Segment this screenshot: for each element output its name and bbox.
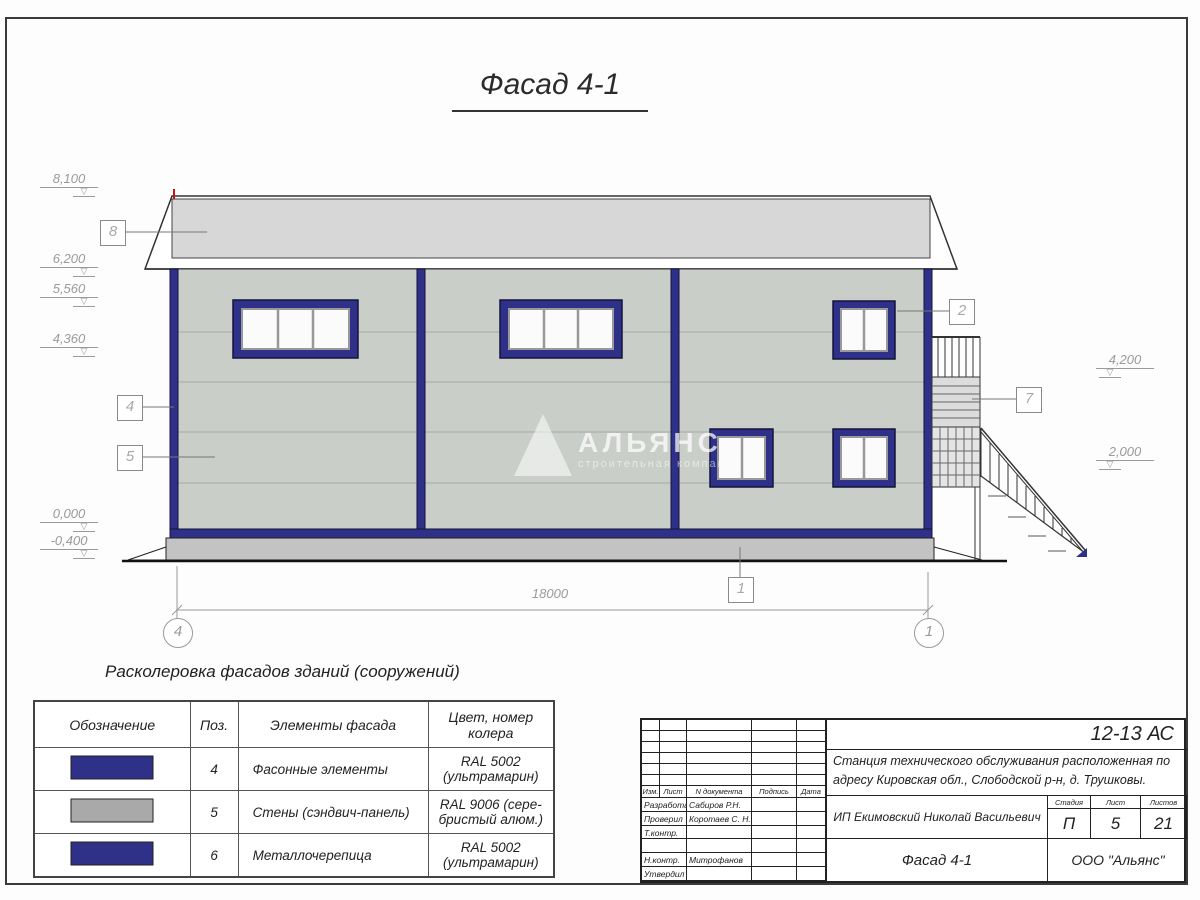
legend-element: Металлочерепица [238,834,428,878]
elevation-value: -0,400 [51,533,88,548]
callout-stair-landing: 7 [1016,387,1042,413]
tb-header-sign: Подпись [752,786,797,798]
elevation-value: 2,000 [1109,444,1142,459]
project-description: Станция технического обслуживания распол… [827,750,1188,796]
stage-value: П [1048,809,1091,838]
stage-label: Стадия [1048,796,1091,809]
elevation-value: 0,000 [53,506,86,521]
title-block-changes: Изм. Лист N документа Подпись Дата Разра… [642,720,826,881]
legend-element: Фасонные элементы [238,748,428,791]
legend-header-row: Обозначение Поз. Элементы фасада Цвет, н… [34,701,554,748]
document-code: 12-13 АС [827,720,1188,750]
legend-swatch-cell [34,791,190,834]
callout-plinth: 1 [728,577,754,603]
tb-header-list: Лист [660,786,687,798]
tb-header-izm: Изм. [642,786,660,798]
axis-bubble-left: 4 [163,618,193,648]
callout-wall: 5 [117,445,143,471]
color-swatch [70,841,154,866]
tb-name [687,867,752,881]
window-3pane-middle [500,300,622,358]
elevation-triangle-icon: ▽ [73,187,95,197]
legend-row: 5 Стены (сэндвич-панель) RAL 9006 (сере-… [34,791,554,834]
elevation-mark: 0,000 ▽ [40,507,98,523]
tb-role: Т.контр. [642,826,687,840]
sheet-label: Лист [1091,796,1141,809]
legend-color: RAL 5002 (ультрамарин) [428,748,554,791]
elevation-mark: 5,560 ▽ [40,282,98,298]
drawing-title: Фасад 4-1 [452,68,648,112]
elevation-value: 6,200 [53,251,86,266]
tb-header-doc: N документа [687,786,752,798]
elevation-value: 8,100 [53,171,86,186]
color-legend-table: Обозначение Поз. Элементы фасада Цвет, н… [33,700,555,878]
elevation-mark: 6,200 ▽ [40,252,98,268]
legend-title: Расколеровка фасадов зданий (сооружений) [105,662,460,682]
axis-bubble-right: 1 [914,618,944,648]
exterior-stairs [932,337,1087,560]
callout-window: 2 [949,299,975,325]
tb-role: Разработал [642,798,687,812]
plinth [122,538,1007,561]
legend-header-designation: Обозначение [34,701,190,748]
legend-color: RAL 9006 (сере- бристый алюм.) [428,791,554,834]
window-2pane-upper-right [833,301,895,359]
callout-roof: 8 [100,220,126,246]
elevation-mark: 2,000 ▽ [1096,445,1154,461]
overall-dimension: 18000 [518,586,582,601]
legend-swatch-cell [34,748,190,791]
elevation-triangle-icon: ▽ [1099,368,1121,378]
callout-corner: 4 [117,395,143,421]
tb-name: Сабиров Р.Н. [687,798,752,812]
elevation-value: 4,200 [1109,352,1142,367]
sheets-label: Листов [1141,796,1187,809]
legend-row: 6 Металлочерепица RAL 5002 (ультрамарин) [34,834,554,878]
client-name: ИП Екимовский Николай Васильевич [827,796,1048,839]
tb-name [687,839,752,853]
drawing-sheet: АЛЬЯНС строительная компания Фасад 4-1 8… [0,0,1200,900]
tb-role: Н.контр. [642,853,687,867]
elevation-triangle-icon: ▽ [73,522,95,532]
roof [145,189,957,269]
tb-role: Утвердил [642,867,687,881]
window-2pane-lower-left [710,429,773,487]
elevation-mark: 8,100 ▽ [40,172,98,188]
elevation-triangle-icon: ▽ [73,267,95,277]
elevation-value: 4,360 [53,331,86,346]
company-name: ООО "Альянс" [1048,839,1188,881]
tb-header-date: Дата [797,786,826,798]
legend-swatch-cell [34,834,190,878]
sheet-title: Фасад 4-1 [827,839,1048,881]
legend-row: 4 Фасонные элементы RAL 5002 (ультрамари… [34,748,554,791]
sheet-value: 5 [1091,809,1141,838]
elevation-triangle-icon: ▽ [73,347,95,357]
elevation-triangle-icon: ▽ [73,297,95,307]
elevation-mark: 4,360 ▽ [40,332,98,348]
tb-role: Проверил [642,812,687,826]
window-3pane-left [233,300,358,358]
legend-color: RAL 5002 (ультрамарин) [428,834,554,878]
sheets-value: 21 [1141,809,1187,838]
legend-pos: 5 [190,791,238,834]
tb-name: Коротаев С. Н. [687,812,752,826]
elevation-mark: -0,400 ▽ [40,534,98,550]
elevation-mark: 4,200 ▽ [1096,353,1154,369]
legend-pos: 4 [190,748,238,791]
tb-name: Митрофанов Я. А. [687,853,752,867]
legend-header-color: Цвет, номер колера [428,701,554,748]
color-swatch [70,798,154,823]
title-block-main: 12-13 АС Станция технического обслуживан… [826,720,1188,881]
elevation-value: 5,560 [53,281,86,296]
legend-header-pos: Поз. [190,701,238,748]
tb-name [687,826,752,840]
legend-pos: 6 [190,834,238,878]
tb-role [642,839,687,853]
color-swatch [70,755,154,780]
legend-header-element: Элементы фасада [238,701,428,748]
window-2pane-lower-right [833,429,895,487]
stage-sheet-grid: Стадия Лист Листов П 5 21 [1048,796,1188,839]
legend-element: Стены (сэндвич-панель) [238,791,428,834]
elevation-triangle-icon: ▽ [1099,460,1121,470]
title-block: Изм. Лист N документа Подпись Дата Разра… [640,718,1186,883]
elevation-triangle-icon: ▽ [73,549,95,559]
